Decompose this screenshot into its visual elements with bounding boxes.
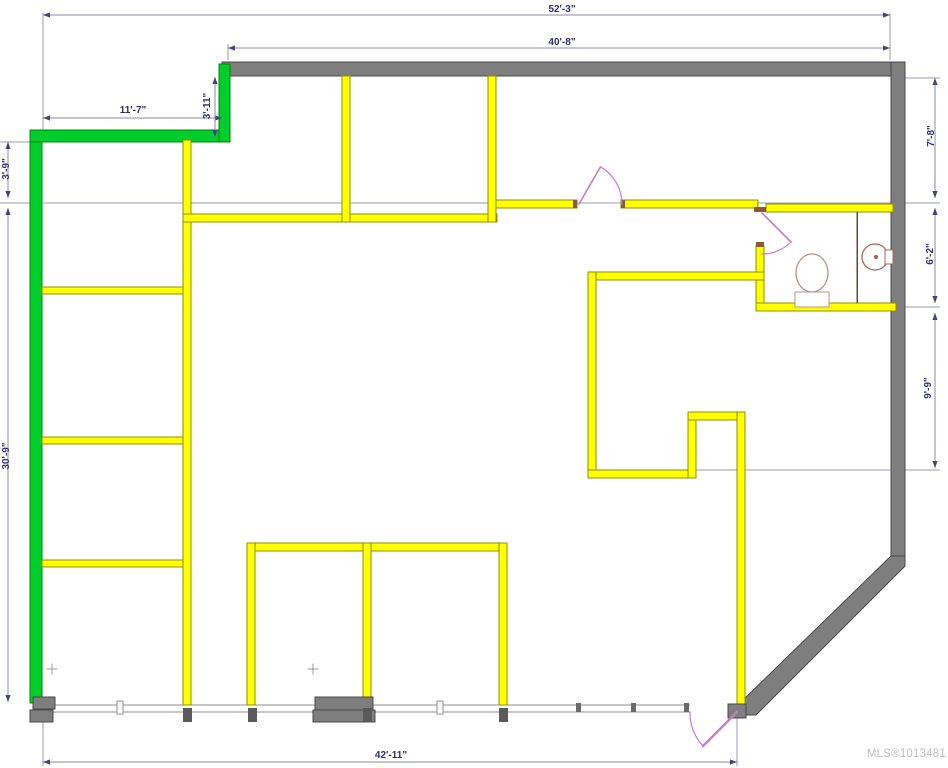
dimension-arrow — [932, 191, 937, 198]
dimension-label: 30'-9" — [1, 442, 12, 469]
dimension-label: 11'-7" — [120, 105, 147, 116]
interior-wall — [588, 272, 764, 280]
exterior-wall — [891, 62, 905, 562]
interior-wall — [247, 543, 507, 551]
interior-wall — [183, 214, 497, 222]
window-mullion — [437, 701, 443, 714]
dimension-arrow — [883, 45, 890, 50]
door-swing — [703, 712, 737, 746]
dimension-label: 9'-9" — [923, 377, 934, 399]
interior-wall — [42, 437, 183, 444]
window-mullion — [117, 701, 123, 714]
door-stub-cap — [573, 200, 577, 208]
green-wall — [219, 64, 230, 142]
mls-watermark: MLS®1013481 — [866, 748, 946, 760]
interior-wall — [737, 412, 745, 707]
dimension-arrow — [5, 695, 10, 702]
floor-plan-drawing: 52'-3"40'-8"11'-7"3'-11"3'-9"30'-9"7'-8"… — [0, 0, 948, 768]
dimension-arrow — [883, 12, 890, 17]
dimension-arrow — [932, 78, 937, 85]
door-swing — [690, 712, 703, 746]
plus-mark — [308, 664, 318, 674]
dimension-label: 3'-11" — [202, 92, 213, 119]
plus-mark — [47, 664, 57, 674]
door-stub-cap — [756, 242, 764, 247]
green-wall — [30, 130, 42, 703]
exterior-wall-diagonal — [742, 556, 905, 715]
interior-wall — [496, 200, 577, 208]
door-swing — [601, 167, 623, 204]
dimension-label: 42'-11" — [375, 750, 407, 761]
dimension-arrow — [932, 313, 937, 320]
dimension-label: 3'-9" — [1, 158, 12, 180]
dimension-arrow — [43, 115, 50, 120]
sink-tap — [885, 250, 893, 264]
window-tick — [631, 703, 636, 712]
door-stub-cap — [754, 207, 766, 212]
dimension-arrow — [212, 77, 217, 84]
interior-wall — [766, 204, 893, 212]
window-tick — [576, 703, 581, 712]
dimension-arrow — [932, 208, 937, 215]
dimension-label: 7'-8" — [926, 125, 937, 147]
dimension-arrow — [932, 296, 937, 303]
interior-wall — [688, 412, 745, 420]
dimension-label: 6'-2" — [925, 243, 936, 265]
floorplan-page: 52'-3"40'-8"11'-7"3'-11"3'-9"30'-9"7'-8"… — [0, 0, 948, 768]
door-swing — [762, 242, 791, 254]
interior-wall — [588, 470, 696, 478]
interior-wall — [488, 76, 496, 222]
sink-drain — [874, 255, 878, 259]
wall-tick — [363, 708, 372, 722]
interior-wall — [588, 272, 596, 478]
wall-tick — [499, 708, 508, 722]
wall-base-block — [30, 710, 53, 722]
exterior-wall — [222, 62, 905, 76]
interior-wall — [688, 412, 696, 478]
interior-wall — [342, 76, 350, 222]
interior-wall — [621, 200, 758, 208]
interior-wall — [42, 560, 183, 567]
dimension-arrow — [43, 12, 50, 17]
toilet-bowl — [796, 254, 828, 292]
door-swing — [579, 167, 601, 204]
window-tick — [684, 703, 689, 712]
interior-wall — [247, 543, 255, 705]
toilet-tank — [795, 292, 829, 307]
wall-base-block — [33, 697, 55, 709]
interior-wall — [499, 543, 507, 705]
interior-wall — [42, 287, 183, 294]
dimension-arrow — [228, 45, 235, 50]
dimension-arrow — [730, 759, 737, 764]
dimension-label: 40'-8" — [548, 37, 575, 48]
dimension-arrow — [5, 191, 10, 198]
dimension-arrow — [932, 461, 937, 468]
green-wall — [30, 130, 230, 142]
dimension-arrow — [5, 142, 10, 149]
dimension-arrow — [43, 759, 50, 764]
dimension-label: 52'-3" — [548, 4, 575, 15]
interior-wall — [183, 140, 191, 705]
wall-tick — [183, 708, 192, 722]
interior-wall — [363, 543, 371, 705]
dimension-arrow — [5, 208, 10, 215]
door-swing — [762, 213, 791, 242]
wall-tick — [248, 708, 257, 722]
